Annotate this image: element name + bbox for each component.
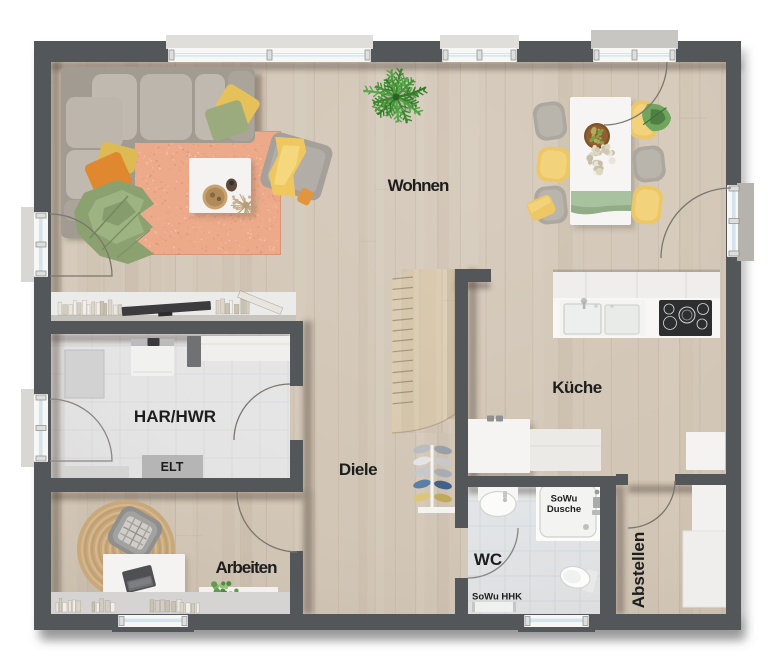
svg-text:HAR/HWR: HAR/HWR — [134, 407, 216, 426]
svg-text:Arbeiten: Arbeiten — [216, 558, 278, 577]
svg-text:Diele: Diele — [339, 460, 377, 479]
svg-text:SoWu HHK: SoWu HHK — [472, 592, 522, 603]
svg-text:WC: WC — [474, 550, 502, 569]
svg-text:Dusche: Dusche — [547, 504, 581, 515]
svg-text:Abstellen: Abstellen — [629, 532, 648, 609]
svg-text:SoWu: SoWu — [551, 494, 578, 505]
svg-text:Wohnen: Wohnen — [388, 176, 449, 195]
svg-text:Küche: Küche — [552, 378, 602, 397]
svg-text:ELT: ELT — [161, 460, 184, 474]
